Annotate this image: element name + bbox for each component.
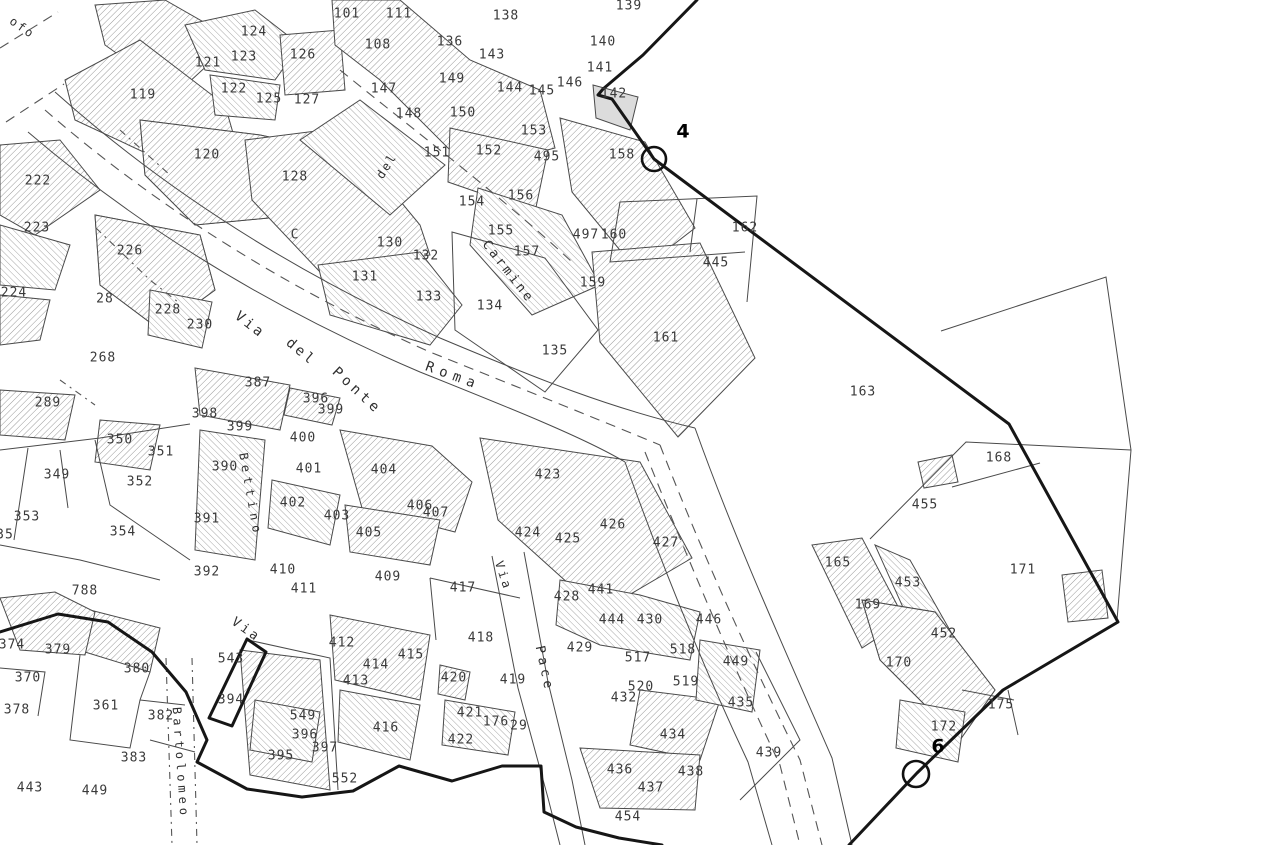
- parcel-label: 387: [245, 376, 271, 391]
- parcel-label: 350: [107, 433, 133, 448]
- parcel-label: 495: [534, 150, 560, 165]
- cadastral-map: 1011111081381391401241211231261221251271…: [0, 0, 1280, 845]
- parcel-label: 452: [931, 627, 957, 642]
- parcel-label: 154: [459, 195, 485, 210]
- street-name-label: Roma: [423, 359, 483, 394]
- parcel-label: 410: [270, 563, 296, 578]
- parcel-label: 379: [45, 643, 71, 658]
- parcel-label: 139: [616, 0, 642, 14]
- parcel-label: 438: [678, 765, 704, 780]
- parcel-label: 370: [15, 671, 41, 686]
- parcel-label: 145: [529, 84, 555, 99]
- parcel-label: 226: [117, 244, 143, 259]
- street-name-label: Pace: [532, 644, 557, 693]
- parcel-label: 127: [294, 93, 320, 108]
- parcel-label: 426: [600, 518, 626, 533]
- parcel-label: 404: [371, 463, 397, 478]
- parcel-label: 409: [375, 570, 401, 585]
- parcel-label: 407: [423, 506, 449, 521]
- parcel-label: 428: [554, 590, 580, 605]
- parcel-label: 439: [756, 746, 782, 761]
- parcel-label: 378: [4, 703, 30, 718]
- parcel-label: 437: [638, 781, 664, 796]
- parcel-label: 29: [510, 719, 528, 734]
- parcel-label: 144: [497, 81, 523, 96]
- parcel-label: 162: [732, 221, 758, 236]
- parcel-label: 441: [588, 583, 614, 598]
- parcel-label: 443: [17, 781, 43, 796]
- parcel-label: 549: [290, 709, 316, 724]
- parcel-label: 155: [488, 224, 514, 239]
- parcel-label: 455: [912, 498, 938, 513]
- parcel-label: 399: [227, 420, 253, 435]
- parcel-label: 353: [14, 510, 40, 525]
- parcel-label: 133: [416, 290, 442, 305]
- parcel-label: 349: [44, 468, 70, 483]
- parcel-label: 228: [155, 303, 181, 318]
- parcel-label: 135: [542, 344, 568, 359]
- parcel-label: 430: [637, 613, 663, 628]
- parcel-label: 497: [573, 228, 599, 243]
- parcel-label: 170: [886, 656, 912, 671]
- parcel-label: 424: [515, 526, 541, 541]
- parcel-label: 142: [601, 87, 627, 102]
- parcel-label: 788: [72, 584, 98, 599]
- parcel-label: 158: [609, 148, 635, 163]
- parcel-label: 398: [192, 407, 218, 422]
- parcel-label: 423: [535, 468, 561, 483]
- parcel-label: 449: [82, 784, 108, 799]
- parcel-label: 415: [398, 648, 424, 663]
- parcel-label: 120: [194, 148, 220, 163]
- parcel-label: 136: [437, 35, 463, 50]
- parcel-label: 351: [148, 445, 174, 460]
- parcel-label: 171: [1010, 563, 1036, 578]
- street-name-label: Bartolomeo: [170, 706, 192, 819]
- parcel-label: 390: [212, 460, 238, 475]
- parcel-label: 418: [468, 631, 494, 646]
- parcel-label: 454: [615, 810, 641, 825]
- parcel-label: 132: [413, 249, 439, 264]
- parcel-label: 543: [218, 652, 244, 667]
- parcel-label: 435: [728, 696, 754, 711]
- parcel-label: 518: [670, 643, 696, 658]
- parcel-label: 519: [673, 675, 699, 690]
- parcel-label: 140: [590, 35, 616, 50]
- parcel-label: 134: [477, 299, 503, 314]
- parcel-label: 111: [386, 7, 412, 22]
- parcel-label: 397: [312, 741, 338, 756]
- parcel-label: 125: [256, 92, 282, 107]
- parcel-label: 444: [599, 613, 625, 628]
- survey-point-number: 4: [676, 121, 689, 143]
- parcel-label: 396: [292, 728, 318, 743]
- parcel-label: 422: [448, 733, 474, 748]
- parcel-label: 449: [723, 655, 749, 670]
- parcel-label: 416: [373, 721, 399, 736]
- parcel-label: 131: [352, 270, 378, 285]
- parcel-label: 156: [508, 189, 534, 204]
- parcel-label: 175: [988, 698, 1014, 713]
- parcel-label: 517: [625, 651, 651, 666]
- parcel-label: 223: [24, 221, 50, 236]
- street-name-label: del: [283, 335, 320, 369]
- parcel-label: 268: [90, 351, 116, 366]
- parcel-label: 402: [280, 496, 306, 511]
- parcel-label: 172: [931, 720, 957, 735]
- parcel-label: 159: [580, 276, 606, 291]
- parcel-label: 427: [653, 536, 679, 551]
- parcel-label: 425: [555, 532, 581, 547]
- parcel-label: 153: [521, 124, 547, 139]
- parcel-label: 417: [450, 581, 476, 596]
- parcel-label: 150: [450, 106, 476, 121]
- parcel-label: 419: [500, 673, 526, 688]
- parcel-label: 429: [567, 641, 593, 656]
- parcel-label: 401: [296, 462, 322, 477]
- street-name-label: ofo: [7, 14, 38, 41]
- parcel-label: 395: [268, 749, 294, 764]
- parcel-label: 124: [241, 25, 267, 40]
- parcel-label: 420: [441, 671, 467, 686]
- parcel-label: 354: [110, 525, 136, 540]
- parcel-label: 108: [365, 38, 391, 53]
- parcel-label: 230: [187, 318, 213, 333]
- parcel-label: 123: [231, 50, 257, 65]
- parcel-label: 152: [476, 144, 502, 159]
- parcel-label: 400: [290, 431, 316, 446]
- parcel-label: 176: [483, 715, 509, 730]
- parcel-label: 399: [318, 403, 344, 418]
- parcel-label: 222: [25, 174, 51, 189]
- parcel-label: 122: [221, 82, 247, 97]
- parcel-label: 35: [0, 528, 14, 543]
- parcel-label: 28: [96, 292, 114, 307]
- parcel-label: 436: [607, 763, 633, 778]
- parcel-label: 165: [825, 556, 851, 571]
- parcel-label: 352: [127, 475, 153, 490]
- survey-point-number: 6: [931, 736, 944, 758]
- parcel-label: C: [291, 228, 300, 243]
- parcel-label: 138: [493, 9, 519, 24]
- parcel-label: 130: [377, 236, 403, 251]
- parcel-label: 141: [587, 61, 613, 76]
- parcel-label: 453: [895, 576, 921, 591]
- parcel-label: 403: [324, 509, 350, 524]
- parcel-label: 121: [195, 56, 221, 71]
- parcel-label: 168: [986, 451, 1012, 466]
- parcel-label: 445: [703, 256, 729, 271]
- parcel-label: 143: [479, 48, 505, 63]
- parcel-label: 552: [332, 772, 358, 787]
- parcel-label: 160: [601, 228, 627, 243]
- parcel-label: 289: [35, 396, 61, 411]
- parcel-label: 101: [334, 7, 360, 22]
- parcel-label: 383: [121, 751, 147, 766]
- parcel-label: 151: [424, 146, 450, 161]
- parcel-label: 169: [855, 598, 881, 613]
- parcel-label: 434: [660, 728, 686, 743]
- parcel-label: 446: [696, 613, 722, 628]
- parcel-label: 412: [329, 636, 355, 651]
- parcel-label: 224: [1, 286, 27, 301]
- street-name-label: Via: [232, 308, 269, 342]
- parcel-label: 119: [130, 88, 156, 103]
- parcel-label: 405: [356, 526, 382, 541]
- parcel-label: 414: [363, 658, 389, 673]
- parcel-label: 413: [343, 674, 369, 689]
- map-canvas: 1011111081381391401241211231261221251271…: [0, 0, 1280, 845]
- parcel-label: 361: [93, 699, 119, 714]
- parcel-label: 391: [194, 512, 220, 527]
- parcel-label: 394: [218, 693, 244, 708]
- parcel-label: 128: [282, 170, 308, 185]
- parcel-label: 374: [0, 638, 25, 653]
- parcel-label: 411: [291, 582, 317, 597]
- parcel-label: 380: [124, 662, 150, 677]
- parcel-label: 146: [557, 76, 583, 91]
- parcel-label: 161: [653, 331, 679, 346]
- parcel-label: 432: [611, 691, 637, 706]
- parcel-label: 421: [457, 706, 483, 721]
- parcel-label: 157: [514, 245, 540, 260]
- parcel-label: 126: [290, 48, 316, 63]
- parcel-label: 392: [194, 565, 220, 580]
- parcel-label: 163: [850, 385, 876, 400]
- parcel-label: 147: [371, 82, 397, 97]
- parcel-label: 149: [439, 72, 465, 87]
- parcel-label: 148: [396, 107, 422, 122]
